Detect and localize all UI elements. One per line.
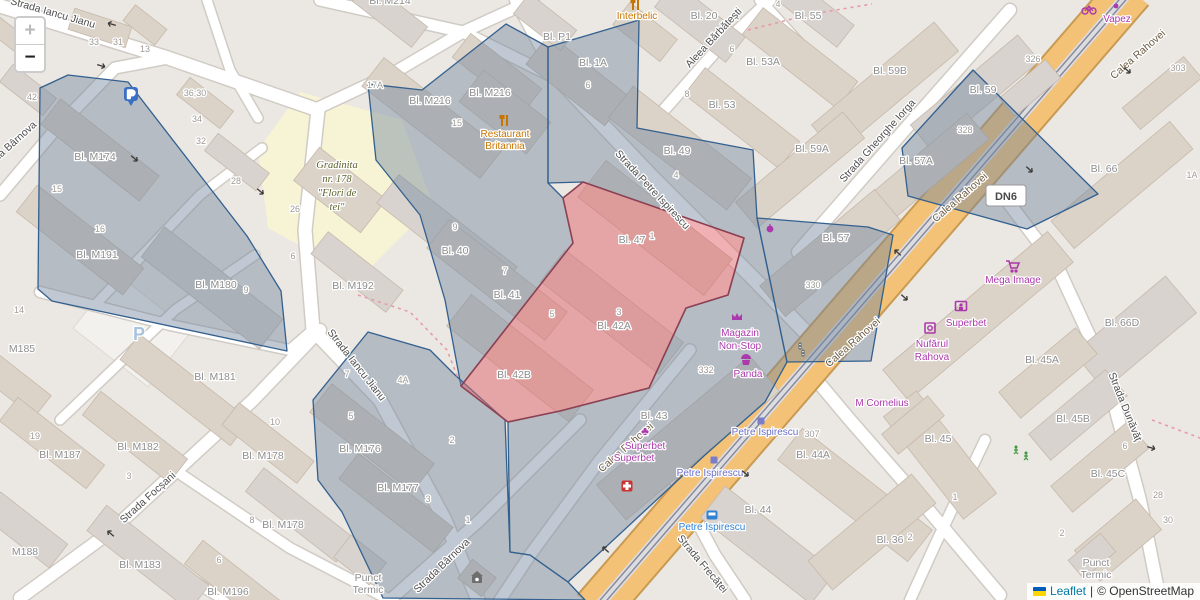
zoom-control: + − bbox=[14, 16, 46, 73]
poi-label: Interbelic bbox=[617, 11, 658, 22]
building-label: 1A bbox=[1186, 170, 1197, 180]
building-label: 3 bbox=[616, 307, 621, 317]
building-label: Bl. 59B bbox=[873, 65, 907, 77]
building-label: 19 bbox=[30, 431, 40, 441]
building-label: Bl. 47 bbox=[619, 234, 646, 246]
signal-icon bbox=[802, 350, 805, 357]
building-label: 26 bbox=[290, 204, 300, 214]
building-label: Bl. 1A bbox=[579, 57, 607, 69]
building-label: 28 bbox=[231, 176, 241, 186]
zoom-in-button[interactable]: + bbox=[16, 18, 44, 45]
poi-label: "Flori de bbox=[318, 188, 357, 199]
tram-icon bbox=[711, 457, 718, 464]
building-label: M188 bbox=[12, 546, 38, 558]
building-label: Bl. 66D bbox=[1105, 317, 1140, 329]
signal-icon bbox=[799, 343, 802, 350]
building-label: Bl. M216 bbox=[409, 95, 451, 107]
building-label: 32 bbox=[196, 136, 206, 146]
building-label: Bl. M183 bbox=[119, 559, 161, 571]
building-label: Bl. 45 bbox=[925, 433, 952, 445]
building-label: 4A bbox=[397, 375, 408, 385]
building-label: 6 bbox=[216, 555, 221, 565]
map-svg: DN6Strada Iancu JianuStrada Iancu JianuS… bbox=[0, 0, 1200, 600]
building-label: 13 bbox=[140, 44, 150, 54]
poi-label: M Cornelius bbox=[855, 398, 908, 409]
building-label: 36;30 bbox=[184, 88, 207, 98]
building-label: 332 bbox=[698, 365, 713, 375]
building-label: 6 bbox=[1122, 441, 1127, 451]
poi-label: Superbet bbox=[625, 441, 666, 452]
building-label: Bl. M216 bbox=[469, 87, 511, 99]
poi-label: Britannia bbox=[485, 141, 525, 152]
building-label: 8 bbox=[249, 515, 254, 525]
building-label: Bl. M214 bbox=[369, 0, 411, 7]
ukraine-flag-icon bbox=[1033, 587, 1046, 596]
attribution-separator: | bbox=[1090, 584, 1093, 598]
building-label: Punct bbox=[1083, 557, 1110, 569]
poi-label: Petre Ispirescu bbox=[679, 522, 746, 533]
building-label: Bl. 53 bbox=[709, 99, 736, 111]
building-label: 8 bbox=[684, 89, 689, 99]
building-label: Punct bbox=[355, 572, 382, 584]
building-label: Bl. 55 bbox=[795, 10, 822, 22]
building-label: Bl. M176 bbox=[339, 443, 381, 455]
poi-label: Petre Ispirescu bbox=[677, 468, 744, 479]
building-label: 330 bbox=[805, 280, 820, 290]
building-label: 4 bbox=[775, 0, 780, 9]
building-label: 7 bbox=[502, 266, 507, 276]
play-icon bbox=[1024, 452, 1028, 461]
building-label: Bl. M187 bbox=[39, 449, 81, 461]
building-label: Bl. P1 bbox=[543, 31, 571, 43]
building-label: 2 bbox=[449, 435, 454, 445]
building-label: M185 bbox=[9, 343, 35, 355]
building-label: 15 bbox=[452, 118, 462, 128]
building-label: Bl. 53A bbox=[746, 56, 780, 68]
building-label: Bl. 41 bbox=[494, 289, 521, 301]
building-label: 42 bbox=[27, 92, 37, 102]
building-label: Termic bbox=[1081, 569, 1112, 581]
building-label: 1 bbox=[952, 492, 957, 502]
building-label: Bl. 59A bbox=[795, 143, 829, 155]
building-label: Bl. M196 bbox=[207, 586, 249, 598]
building-label: Bl. 44A bbox=[796, 449, 830, 461]
building-label: 328 bbox=[957, 125, 972, 135]
building-label: 2 bbox=[1059, 528, 1064, 538]
building-label: Bl. M180 bbox=[195, 279, 237, 291]
poi-label: Magazin bbox=[721, 328, 759, 339]
zoom-out-button[interactable]: − bbox=[16, 45, 44, 71]
building-label: Bl. M178 bbox=[262, 519, 304, 531]
building-label: 326 bbox=[1025, 54, 1040, 64]
building-label: 9 bbox=[243, 285, 248, 295]
building-label: Termic bbox=[353, 584, 384, 596]
building-label: 5 bbox=[348, 411, 353, 421]
building-label: Bl. 49 bbox=[664, 145, 691, 157]
poi-label: Gradinita bbox=[316, 160, 357, 171]
svg-text:♣: ♣ bbox=[641, 424, 649, 438]
building-label: Bl. M174 bbox=[74, 151, 116, 163]
map-canvas[interactable]: DN6Strada Iancu JianuStrada Iancu JianuS… bbox=[0, 0, 1200, 600]
building-label: 3 bbox=[425, 494, 430, 504]
building-label: 34 bbox=[192, 114, 202, 124]
poi-label: Superbet bbox=[946, 318, 987, 329]
building-label: Bl. 45C bbox=[1091, 468, 1126, 480]
building-label: Bl. M181 bbox=[194, 371, 236, 383]
building-label: 1 bbox=[649, 231, 654, 241]
building-label: 5 bbox=[549, 309, 554, 319]
building-label: Bl. 40 bbox=[442, 245, 469, 257]
dot-icon bbox=[1114, 4, 1119, 9]
building-label: 6 bbox=[585, 80, 590, 90]
building-label: 4 bbox=[673, 170, 678, 180]
poi-label: Panda bbox=[734, 369, 763, 380]
poi-label: nr. 178 bbox=[322, 174, 352, 185]
building-label: 15 bbox=[52, 184, 62, 194]
building-label: Bl. M192 bbox=[332, 280, 374, 292]
poi-label: tei" bbox=[330, 202, 345, 213]
poi-label: Mega Image bbox=[985, 275, 1041, 286]
leaflet-link[interactable]: Leaflet bbox=[1050, 584, 1086, 598]
poi-label: Rahova bbox=[915, 352, 950, 363]
building-label: 6 bbox=[290, 251, 295, 261]
poi-label: Non-Stop bbox=[719, 341, 762, 352]
building-label: 16 bbox=[95, 224, 105, 234]
building-label: 1 bbox=[465, 515, 470, 525]
busstop-icon bbox=[707, 511, 718, 520]
building-label: Bl. 44 bbox=[745, 504, 772, 516]
poi-label: Vapez bbox=[1103, 14, 1131, 25]
building-label: Bl. 59 bbox=[970, 84, 997, 96]
building-label: Bl. 42B bbox=[497, 369, 531, 381]
building-label: Bl. 57 bbox=[823, 232, 850, 244]
building-label: 28 bbox=[1153, 490, 1163, 500]
building-label: 31 bbox=[113, 37, 123, 47]
play-icon bbox=[1014, 446, 1018, 455]
building-label: Bl. 45B bbox=[1056, 413, 1090, 425]
building-label: 303 bbox=[1170, 63, 1185, 73]
building-label: Bl. M177 bbox=[377, 482, 419, 494]
poi-label: Petre Ispirescu bbox=[732, 427, 799, 438]
building-label: 2 bbox=[907, 532, 912, 542]
building-label: Bl. 20 bbox=[691, 10, 718, 22]
building-label: Bl. 36 bbox=[877, 534, 904, 546]
building-label: Bl. 45A bbox=[1025, 354, 1059, 366]
building-label: Bl. 43 bbox=[641, 410, 668, 422]
building-label: 7 bbox=[344, 369, 349, 379]
building-label: Bl. M178 bbox=[242, 450, 284, 462]
building-label: 33 bbox=[89, 37, 99, 47]
building-label: 3 bbox=[126, 471, 131, 481]
svg-text:P: P bbox=[127, 89, 134, 101]
svg-text:P: P bbox=[133, 324, 145, 344]
building-label: Bl. 42A bbox=[597, 320, 631, 332]
pflat-icon: P bbox=[133, 324, 145, 344]
attribution-bar: Leaflet | © OpenStreetMap bbox=[1027, 583, 1200, 600]
building-label: 9 bbox=[452, 222, 457, 232]
poi-label: Superbet bbox=[614, 453, 655, 464]
building-label: Bl. M191 bbox=[76, 249, 118, 261]
tram-icon bbox=[758, 418, 765, 425]
building-label: 6 bbox=[729, 44, 734, 54]
pharmacy-icon bbox=[622, 481, 633, 492]
building-label: Bl. 57A bbox=[899, 155, 933, 167]
osm-attribution: © OpenStreetMap bbox=[1097, 584, 1194, 598]
building-label: 17A bbox=[367, 80, 383, 90]
poi-label: Nufărul bbox=[916, 339, 948, 350]
building-label: 307 bbox=[804, 429, 819, 439]
building-label: Bl. 66 bbox=[1091, 163, 1118, 175]
building-label: 10 bbox=[270, 417, 280, 427]
building-label: 14 bbox=[14, 305, 24, 315]
building-label: Bl. M182 bbox=[117, 441, 159, 453]
dn6-badge-label: DN6 bbox=[995, 191, 1017, 203]
club-icon: ♣ bbox=[641, 424, 649, 438]
poi-label: Restaurant bbox=[481, 129, 530, 140]
building-label: 30 bbox=[1163, 515, 1173, 525]
